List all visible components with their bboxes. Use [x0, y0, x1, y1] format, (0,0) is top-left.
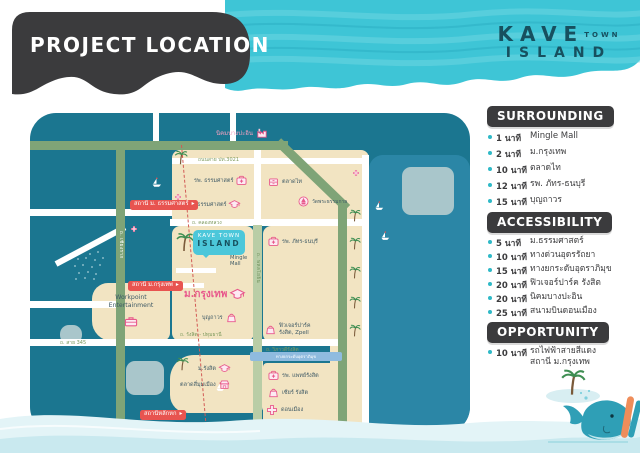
kave-marker-line2: ISLAND [193, 239, 245, 248]
market-cabinet-icon [267, 175, 280, 188]
poi-patrangsit-hospital: รพ. แพทย์รังสิต [267, 369, 319, 382]
poi-workpoint: Workpoint Entertainment [92, 294, 170, 329]
poi-boonthavorn: บุญถาวร [202, 311, 238, 324]
palm-tree-icon [348, 208, 361, 223]
item-time: 20 นาที [496, 278, 530, 292]
road-top-green [30, 141, 288, 150]
list-item: 5 นาทีม.ธรรมศาสตร์ [488, 236, 638, 250]
bullet-icon [488, 310, 492, 314]
station-label: สถานี ม. ธรรมศาสตร์ [134, 202, 189, 208]
brand-island: ISLAND [484, 45, 634, 61]
station-label: สถานี ม.กรุงเทพ [132, 283, 173, 289]
graduation-cap-icon [228, 198, 241, 211]
bullet-icon [488, 282, 492, 286]
list-item: 1 นาทีMingle Mall [488, 131, 638, 145]
graduation-cap-icon [229, 286, 246, 303]
item-place: นิคมบางปะอิน [530, 292, 582, 303]
road-label-sai345: ถ. สาย 345 [60, 339, 86, 347]
infographic-root: KAVETOWN ISLAND PROJECT LOCATION [0, 0, 640, 453]
whale-illustration [488, 338, 640, 450]
item-time: 15 นาที [496, 264, 530, 278]
section-title-accessibility: ACCESSIBILITY [487, 212, 612, 233]
item-time: 15 นาที [496, 195, 530, 209]
palm-tree-icon [173, 149, 188, 166]
item-time: 10 นาที [496, 250, 530, 264]
palm-tree-icon [348, 323, 361, 338]
marker-cross-icon [130, 225, 138, 233]
poi-talad-thai: ตลาดไท [267, 175, 302, 188]
medkit-icon [235, 174, 248, 187]
poi-rangsit-university: ม.รังสิต [198, 362, 231, 375]
list-item: 10 นาทีตลาดไท [488, 163, 638, 177]
minor-road [153, 113, 159, 143]
palm-tree-icon [174, 229, 194, 255]
poi-label: รังสิต, Zpell [279, 330, 311, 337]
item-place: ม.กรุงเทพ [530, 147, 566, 158]
shopping-bag-icon [264, 323, 277, 336]
poi-bangkok-university: ม.กรุงเทพ [184, 286, 246, 303]
list-item: 20 นาทีนิคมบางปะอิน [488, 292, 638, 306]
road-label-pt3021: ถนนสาย ปท.3021 [198, 156, 239, 164]
item-time: 10 นาที [496, 163, 530, 177]
list-item: 2 นาทีม.กรุงเทพ [488, 147, 638, 161]
temple-icon [297, 195, 310, 208]
brand-town: TOWN [584, 31, 620, 39]
item-place: ม.ธรรมศาสตร์ [530, 236, 584, 247]
section-title-surrounding: SURROUNDING [487, 106, 614, 127]
list-item: 25 นาทีสนามบินดอนเมือง [488, 306, 638, 320]
bullet-icon [488, 254, 492, 258]
bullet-icon [488, 183, 492, 187]
item-time: 2 นาที [496, 147, 530, 161]
palm-tree-icon [348, 295, 361, 310]
brand-kave: KAVE [497, 22, 584, 46]
kave-marker-tail [202, 254, 210, 262]
poi-label: นิคมบางปะอิน [216, 128, 253, 138]
bullet-icon [488, 151, 492, 155]
road-station-access [30, 209, 172, 216]
poi-nikhom-bang-pa-in: นิคมบางปะอิน [216, 126, 269, 140]
list-item: 12 นาทีรพ. ภัทร-ธนบุรี [488, 179, 638, 193]
poi-label: ม.รังสิต [198, 365, 216, 373]
poi-pathara-thonburi-hospital: รพ. ภัทร-ธนบุรี [267, 235, 318, 248]
poi-label: Mingle Mall [230, 255, 256, 267]
poi-label: บุญถาวร [202, 314, 223, 322]
poi-label: Workpoint [92, 294, 170, 302]
palm-tree-icon [175, 356, 189, 372]
poi-label: Entertainment [92, 302, 170, 310]
poi-mingle-mall: Mingle Mall [230, 255, 256, 267]
station-badge-bangkok-u: สถานี ม.กรุงเทพ ▸ [128, 281, 183, 291]
road-label-chiangrak: ถ. เชียงราก [117, 231, 124, 259]
arrow-icon: ▸ [176, 283, 179, 289]
palm-tree-icon [348, 236, 361, 251]
item-place: ตลาดไท [530, 163, 561, 174]
page-title: PROJECT LOCATION [30, 33, 270, 57]
bullet-icon [488, 199, 492, 203]
brand-logo: KAVETOWN ISLAND [484, 22, 634, 61]
poi-wat-phra-dhammakaya: วัดพระธรรมกาย [297, 195, 347, 208]
poi-label: ม.กรุงเทพ [184, 287, 227, 302]
poi-future-park: ฟิวเจอร์ปาร์ค รังสิต, Zpell [264, 323, 311, 337]
poi-label: วัดพระธรรมกาย [312, 198, 347, 206]
item-place: Mingle Mall [530, 131, 578, 142]
boat-icon [373, 200, 385, 212]
item-time: 25 นาที [496, 306, 530, 320]
list-item: 10 นาทีทางด่วนอุดรรัถยา [488, 250, 638, 264]
medkit-icon [267, 235, 280, 248]
poi-label: ฟิวเจอร์ปาร์ค [279, 323, 311, 330]
graduation-cap-icon [218, 362, 231, 375]
shopping-bag-icon [225, 311, 238, 324]
list-item: 20 นาทีฟิวเจอร์ปาร์ค รังสิต [488, 278, 638, 292]
factory-icon [255, 126, 269, 140]
bullet-icon [488, 135, 492, 139]
road-label-rangsit-pathum: ถ. รังสิต - ปทุมธานี [180, 331, 222, 339]
item-time: 1 นาที [496, 131, 530, 145]
minor-road [176, 268, 216, 273]
road-label-viphavadi: ถ. วิภาวดีรังสิต [266, 346, 299, 354]
item-place: บุญถาวร [530, 195, 562, 206]
station-badge-thammasat: สถานี ม. ธรรมศาสตร์ ▸ [130, 200, 198, 210]
medkit-icon [267, 369, 280, 382]
bullet-icon [488, 240, 492, 244]
item-place: ทางยกระดับอุตราภิมุข [530, 264, 612, 275]
item-place: ฟิวเจอร์ปาร์ค รังสิต [530, 278, 601, 289]
road-label-khlongluang: ถ. คลองหลวง [192, 219, 222, 227]
list-item: 15 นาทีทางยกระดับอุตราภิมุข [488, 264, 638, 278]
bullet-icon [488, 268, 492, 272]
poi-label: รพ. ธรรมศาสตร์ [194, 177, 233, 185]
poi-label: รพ. ภัทร-ธนบุรี [282, 238, 318, 246]
list-item: 15 นาทีบุญถาวร [488, 195, 638, 209]
arrow-icon: ▸ [192, 202, 195, 208]
poi-label: ตลาดไท [282, 178, 302, 186]
marker-cross-icon [352, 169, 360, 177]
bullet-icon [488, 167, 492, 171]
item-time: 20 นาที [496, 292, 530, 306]
palm-tree-icon [348, 265, 361, 280]
map-island [402, 167, 454, 215]
kave-island-marker: KAVE TOWN ISLAND [193, 230, 245, 255]
briefcase-icon [123, 313, 139, 329]
item-place: ทางด่วนอุดรรัถยา [530, 250, 595, 261]
item-time: 12 นาที [496, 179, 530, 193]
item-place: รพ. ภัทร-ธนบุรี [530, 179, 585, 190]
boat-icon [379, 230, 391, 242]
poi-thammasat-hospital: รพ. ธรรมศาสตร์ [194, 174, 248, 187]
poi-label: รพ. แพทย์รังสิต [282, 372, 319, 380]
bullet-icon [488, 296, 492, 300]
item-time: 5 นาที [496, 236, 530, 250]
boat-icon [150, 176, 163, 189]
item-place: สนามบินดอนเมือง [530, 306, 597, 317]
